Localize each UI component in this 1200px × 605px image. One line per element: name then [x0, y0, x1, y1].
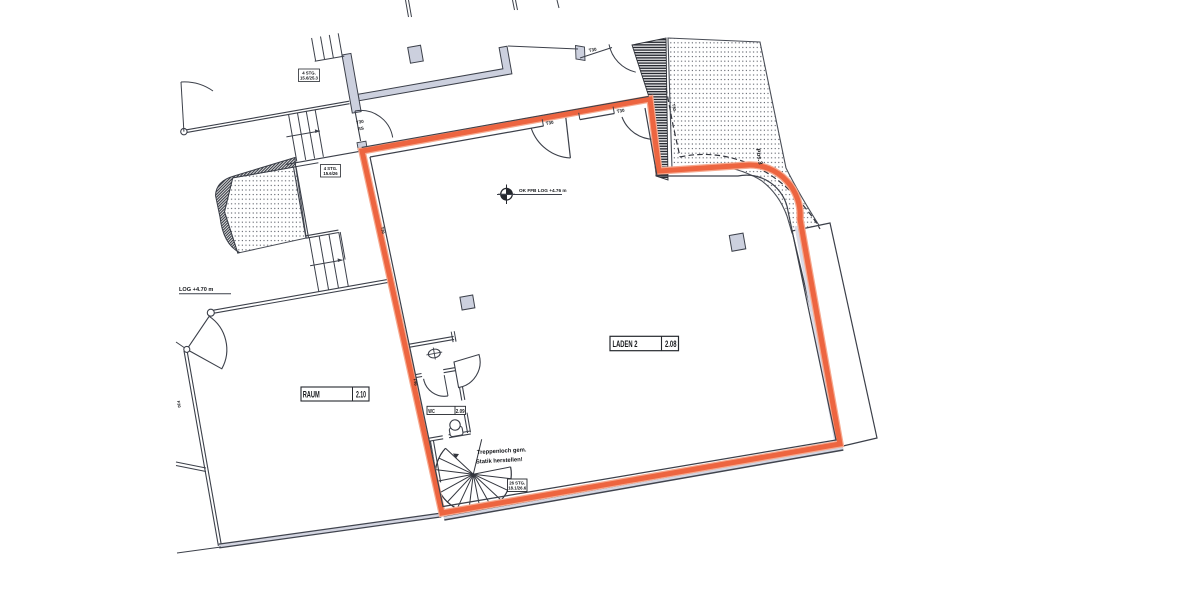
svg-text:WC: WC — [428, 409, 435, 415]
svg-text:LADEN 2: LADEN 2 — [613, 339, 638, 349]
svg-text:RS: RS — [357, 125, 364, 131]
svg-text:4 STG.: 4 STG. — [324, 166, 338, 171]
svg-text:15.6/25.3: 15.6/25.3 — [300, 76, 319, 81]
svg-text:OK FFB LOG +4.76 m: OK FFB LOG +4.76 m — [519, 188, 567, 193]
svg-text:18.1/26.6: 18.1/26.6 — [508, 486, 527, 491]
svg-text:26 STG.: 26 STG. — [509, 480, 525, 485]
svg-text:2.10: 2.10 — [356, 390, 366, 400]
svg-text:RAUM: RAUM — [303, 389, 320, 399]
svg-text:4 STG.: 4 STG. — [302, 70, 316, 75]
svg-text:2.09: 2.09 — [456, 409, 465, 415]
svg-text:2.08: 2.08 — [665, 339, 677, 349]
svg-text:15.6/26: 15.6/26 — [323, 171, 338, 176]
svg-text:LOG +4.70 m: LOG +4.70 m — [179, 287, 213, 293]
